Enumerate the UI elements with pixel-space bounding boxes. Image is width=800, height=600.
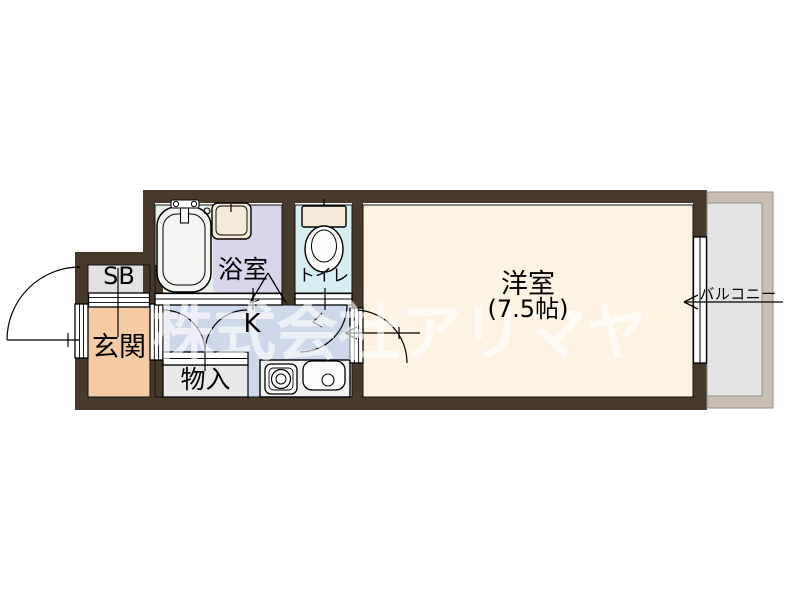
- bathtub-icon: [157, 200, 211, 292]
- entrance-door-arc: [7, 267, 80, 340]
- label-toilet: トイレ: [294, 268, 353, 286]
- label-shoebox: SB: [88, 264, 150, 289]
- label-balcony: バルコニー: [692, 287, 784, 303]
- toilet-icon: [302, 199, 346, 272]
- label-kitchen: K: [238, 311, 266, 338]
- label-main-room-size: (7.5帖): [363, 297, 693, 322]
- label-bathroom: 浴室: [212, 257, 274, 283]
- label-storage: 物入: [163, 367, 248, 393]
- entrance-door: [7, 267, 88, 358]
- floor-plan: 株式会社アリマヤ SB 玄関 浴室 トイレ K 物入 洋室 (7.5帖) バルコ…: [0, 0, 800, 600]
- label-entrance: 玄関: [88, 334, 150, 362]
